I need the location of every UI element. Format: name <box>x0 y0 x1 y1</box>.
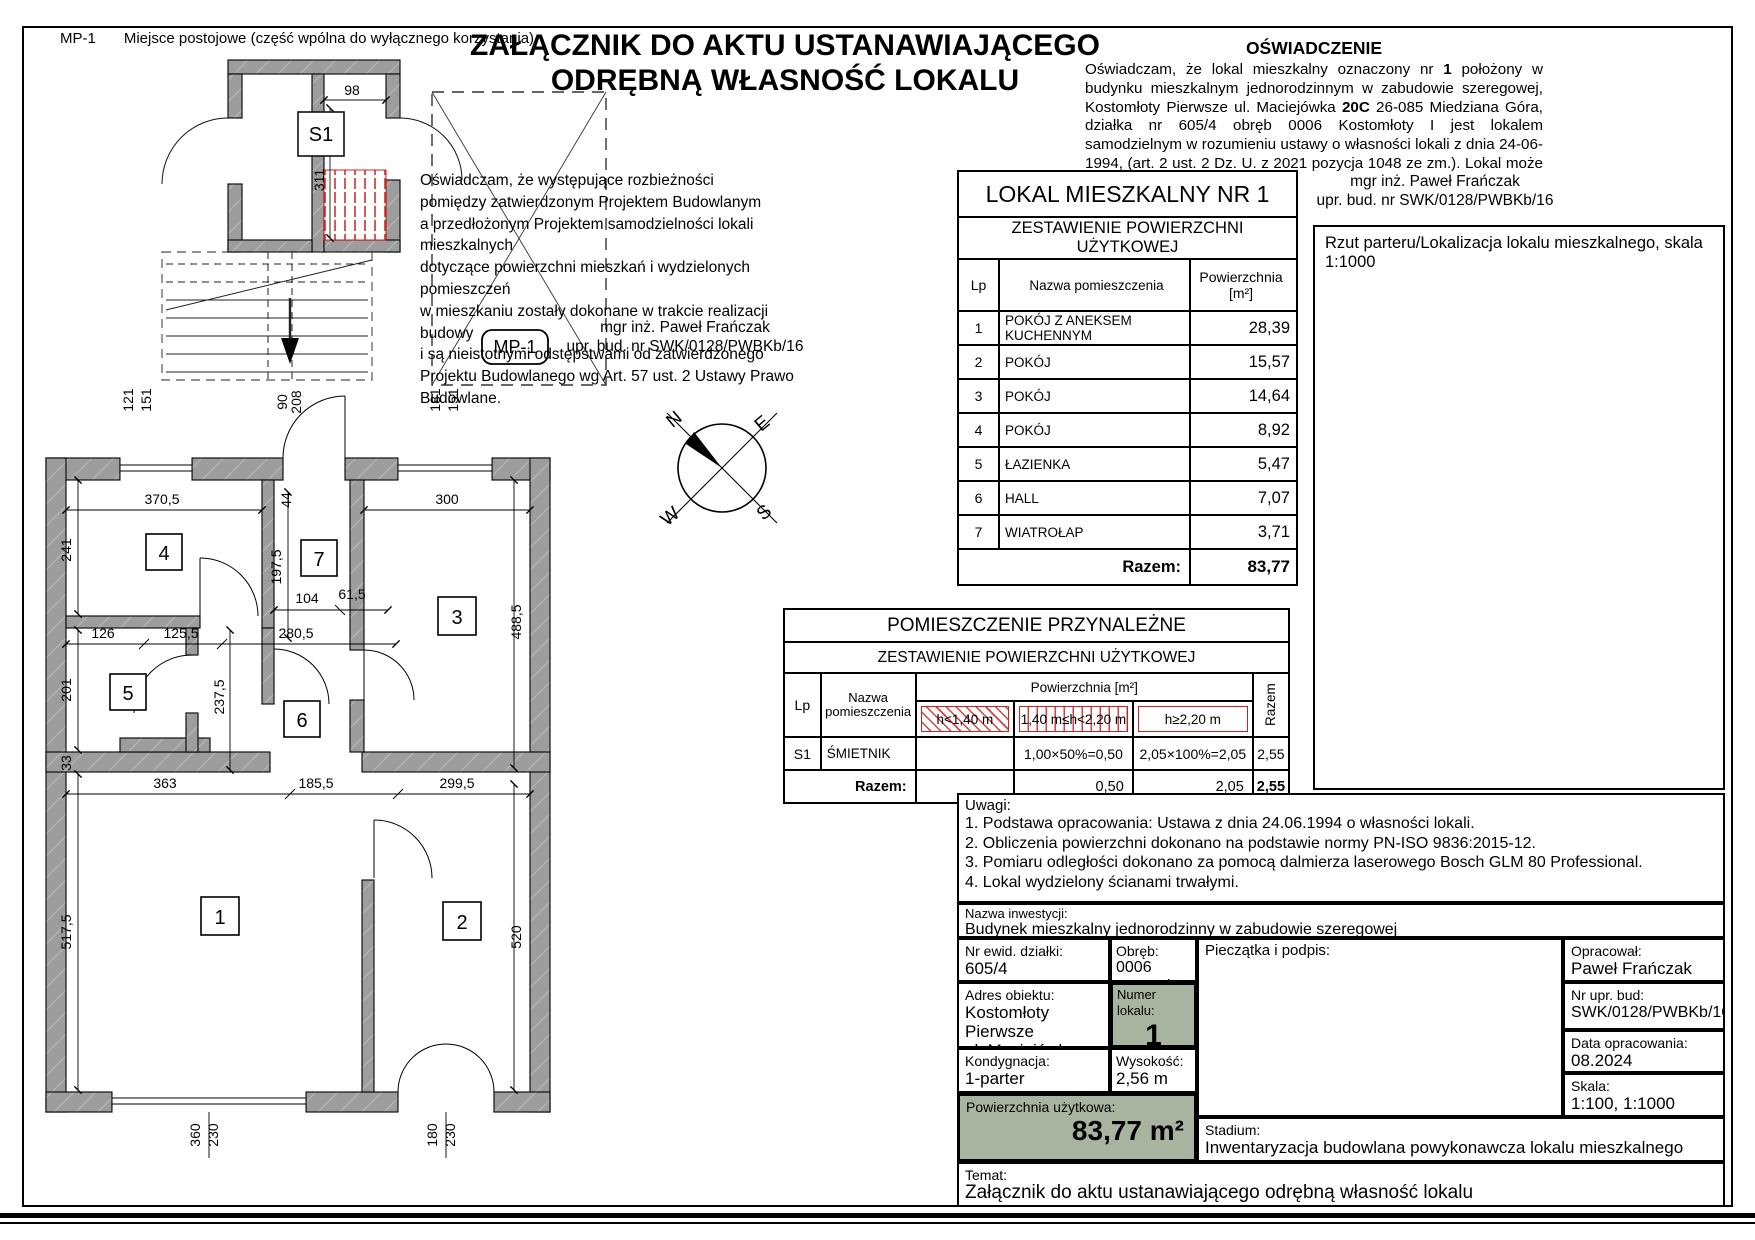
nazwa-inwestycji-cell: Nazwa inwestycji: Budynek mieszkalny jed… <box>957 903 1725 938</box>
table-row: S1 ŚMIETNIK 1,00×50%=0,50 2,05×100%=2,05… <box>784 737 1289 770</box>
oswiadczenie-heading: OŚWIADCZENIE <box>1085 38 1543 59</box>
total-row: Razem:83,77 <box>958 549 1297 585</box>
table-row: 3POKÓJ14,64 <box>958 379 1297 413</box>
svg-text:44: 44 <box>278 492 294 508</box>
kondygnacja-cell: Kondygnacja:1-parter <box>957 1048 1110 1093</box>
svg-text:363: 363 <box>153 775 177 791</box>
location-box <box>1313 225 1725 790</box>
prz-col-name: Nazwapomieszczenia <box>821 673 916 737</box>
svg-text:61,5: 61,5 <box>338 586 365 602</box>
svg-text:201: 201 <box>58 678 74 702</box>
prz-subtitle: ZESTAWIENIE POWIERZCHNI UŻYTKOWEJ <box>784 642 1289 673</box>
svg-text:151: 151 <box>138 388 154 412</box>
svg-text:241: 241 <box>58 538 74 562</box>
svg-text:230: 230 <box>205 1123 221 1147</box>
powierzchnia-cell: Powierzchnia użytkowa: 83,77 m² <box>957 1093 1197 1162</box>
prz-title: POMIESZCZENIE PRZYNALEŻNE <box>784 609 1289 642</box>
svg-text:S: S <box>753 501 776 525</box>
dim-lines <box>66 480 530 1158</box>
table-row: 6HALL7,07 <box>958 481 1297 515</box>
svg-text:5: 5 <box>122 683 133 705</box>
s1-dim-98: 98 <box>344 82 360 98</box>
svg-text:185,5: 185,5 <box>298 775 333 791</box>
svg-text:125,5: 125,5 <box>163 625 198 641</box>
table-row: 1POKÓJ Z ANEKSEM KUCHENNYM28,39 <box>958 311 1297 345</box>
uwagi-heading: Uwagi: <box>965 798 1717 814</box>
lokal-subtitle: ZESTAWIENIE POWIERZCHNI UŻYTKOWEJ <box>958 217 1297 259</box>
upr-cell: Nr upr. bud:SWK/0128/PWBKb/16 <box>1563 982 1725 1030</box>
opracowal-cell: Opracował:Paweł Frańczak <box>1563 938 1725 982</box>
table-row: 2POKÓJ15,57 <box>958 345 1297 379</box>
uwagi-box: Uwagi: 1. Podstawa opracowania: Ustawa z… <box>957 793 1725 903</box>
przynalezne-table: POMIESZCZENIE PRZYNALEŻNE ZESTAWIENIE PO… <box>783 608 1290 804</box>
svg-text:280,5: 280,5 <box>278 625 313 641</box>
svg-text:1: 1 <box>214 907 225 929</box>
table-row: 7WIATROŁAP3,71 <box>958 515 1297 549</box>
s1-dim-311: 311 <box>311 169 327 192</box>
numer-lokalu-cell: Numer lokalu: 1 <box>1110 982 1197 1048</box>
svg-text:300: 300 <box>435 491 459 507</box>
col-lp: Lp <box>958 259 999 311</box>
svg-text:517,5: 517,5 <box>58 914 74 949</box>
lokal-title: LOKAL MIESZKALNY NR 1 <box>958 171 1297 217</box>
svg-text:180: 180 <box>424 1123 440 1147</box>
prz-col-razem: Razem <box>1253 673 1289 737</box>
adres-cell: Adres obiektu: Kostomłoty Pierwsze ul. M… <box>957 982 1110 1048</box>
stadium-cell: Stadium:Inwentaryzacja budowlana powykon… <box>1197 1117 1725 1162</box>
corner-code: MP-1 <box>60 30 96 47</box>
obreb-cell: Obręb: 0006 Kostomłoty I <box>1110 938 1197 982</box>
svg-text:121: 121 <box>120 388 136 412</box>
prz-col-h1: h<1,40 m <box>916 701 1015 737</box>
svg-text:2: 2 <box>456 912 467 934</box>
table-row: 4POKÓJ8,92 <box>958 413 1297 447</box>
data-cell: Data opracowania:08.2024 <box>1563 1030 1725 1073</box>
dzialka-cell: Nr ewid. działki:605/4 <box>957 938 1110 982</box>
bottom-rule-thick <box>0 1213 1755 1218</box>
lokal-table: LOKAL MIESZKALNY NR 1 ZESTAWIENIE POWIER… <box>957 170 1298 586</box>
svg-text:W: W <box>657 503 684 531</box>
prz-col-group: Powierzchnia [m²] <box>916 673 1253 701</box>
svg-text:237,5: 237,5 <box>211 679 227 714</box>
prz-col-h3: h≥2,20 m <box>1133 701 1253 737</box>
svg-text:E: E <box>751 412 774 436</box>
svg-text:6: 6 <box>296 710 307 732</box>
title-line2: ODRĘBNĄ WŁASNOŚĆ LOKALU <box>435 63 1135 98</box>
bottom-rule-thin <box>0 1222 1755 1224</box>
svg-text:299,5: 299,5 <box>439 775 474 791</box>
svg-text:360: 360 <box>187 1123 203 1147</box>
prz-col-lp: Lp <box>784 673 821 737</box>
svg-text:4: 4 <box>158 543 169 565</box>
page-title: ZAŁĄCZNIK DO AKTU USTANAWIAJĄCEGO ODRĘBN… <box>435 28 1135 98</box>
temat-cell: Temat:Załącznik do aktu ustanawiającego … <box>957 1162 1725 1207</box>
svg-text:370,5: 370,5 <box>144 491 179 507</box>
col-name: Nazwa pomieszczenia <box>999 259 1190 311</box>
location-header: Rzut parteru/Lokalizacja lokalu mieszkal… <box>1325 234 1715 272</box>
prz-col-h2: 1,40 m≤h<2,20 m <box>1014 701 1133 737</box>
svg-text:197,5: 197,5 <box>268 549 284 584</box>
svg-text:33: 33 <box>58 755 74 771</box>
svg-text:208: 208 <box>288 390 304 414</box>
s1-room-label: S1 <box>309 124 333 146</box>
svg-text:104: 104 <box>295 590 319 606</box>
skala-cell: Skala:1:100, 1:1000 <box>1563 1073 1725 1117</box>
svg-text:3: 3 <box>451 607 462 629</box>
signature-statement: mgr inż. Paweł Frańczak upr. bud. nr SWK… <box>545 318 825 356</box>
s1-plan <box>162 60 462 252</box>
svg-text:520: 520 <box>508 925 524 949</box>
svg-text:7: 7 <box>313 549 324 571</box>
document-page: 98 311 S1 MP-1 <box>0 0 1755 1240</box>
wysokosc-cell: Wysokość:2,56 m <box>1110 1048 1197 1093</box>
pieczatka-cell: Pieczątka i podpis: <box>1197 938 1563 1117</box>
svg-text:488,5: 488,5 <box>508 604 524 639</box>
title-line1: ZAŁĄCZNIK DO AKTU USTANAWIAJĄCEGO <box>435 28 1135 63</box>
compass-icon: N E W S <box>657 407 777 530</box>
table-row: 5ŁAZIENKA5,47 <box>958 447 1297 481</box>
svg-text:230: 230 <box>442 1123 458 1147</box>
col-area: Powierzchnia[m²] <box>1190 259 1297 311</box>
svg-text:126: 126 <box>91 625 115 641</box>
statement-block: Oświadczam, że występujące rozbieżności … <box>420 170 820 410</box>
signature-top-right: mgr inż. Paweł Frańczak upr. bud. nr SWK… <box>1285 172 1585 210</box>
stairs <box>162 252 372 380</box>
